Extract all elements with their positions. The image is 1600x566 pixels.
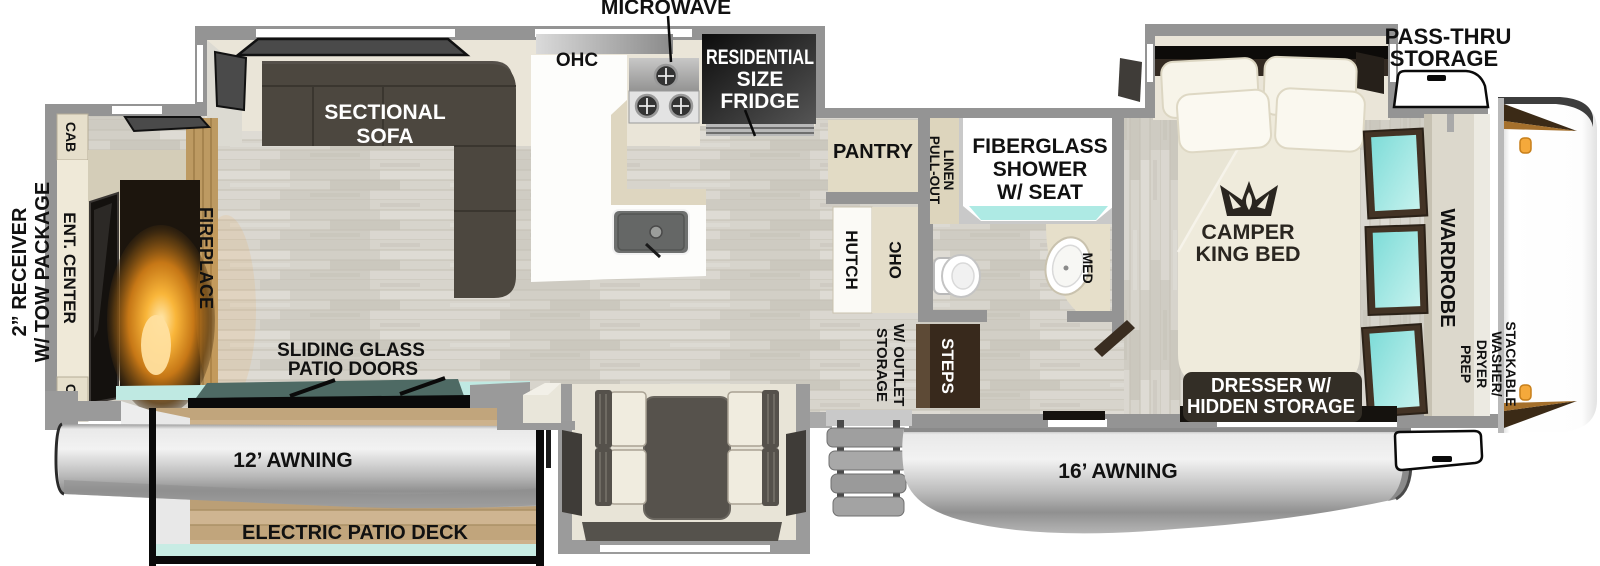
svg-text:2” RECEIVER: 2” RECEIVER xyxy=(9,207,31,336)
svg-text:FRIDGE: FRIDGE xyxy=(720,90,799,113)
svg-text:PREP: PREP xyxy=(1458,345,1474,383)
svg-text:WARDROBE: WARDROBE xyxy=(1436,209,1458,328)
svg-text:HIDDEN STORAGE: HIDDEN STORAGE xyxy=(1187,396,1355,418)
svg-text:HUTCH: HUTCH xyxy=(842,230,861,290)
svg-text:OHC: OHC xyxy=(886,241,905,279)
svg-text:STACKABLE: STACKABLE xyxy=(1503,321,1519,406)
svg-text:OHC: OHC xyxy=(556,50,599,71)
svg-text:DRESSER W/: DRESSER W/ xyxy=(1211,375,1331,397)
svg-text:12’ AWNING: 12’ AWNING xyxy=(233,449,352,472)
svg-text:FIREPLACE: FIREPLACE xyxy=(196,207,216,309)
svg-text:DRYER: DRYER xyxy=(1474,340,1490,389)
svg-text:16’ AWNING: 16’ AWNING xyxy=(1058,460,1177,483)
svg-text:MED: MED xyxy=(1080,252,1096,283)
svg-text:SLIDING GLASS: SLIDING GLASS xyxy=(277,340,425,361)
svg-text:SHOWER: SHOWER xyxy=(993,158,1088,181)
svg-text:KING BED: KING BED xyxy=(1195,242,1300,266)
svg-text:STORAGE: STORAGE xyxy=(1390,46,1498,71)
svg-text:LINEN: LINEN xyxy=(941,150,956,191)
svg-text:STEPS: STEPS xyxy=(938,338,957,394)
svg-text:FIBERGLASS: FIBERGLASS xyxy=(972,135,1107,158)
svg-text:CAMPER: CAMPER xyxy=(1201,220,1295,244)
svg-text:RESIDENTIAL: RESIDENTIAL xyxy=(706,46,814,69)
svg-text:SOFA: SOFA xyxy=(356,125,413,148)
svg-text:ELECTRIC PATIO DECK: ELECTRIC PATIO DECK xyxy=(242,522,468,544)
svg-text:CAB: CAB xyxy=(63,122,79,152)
svg-text:ENT. CENTER: ENT. CENTER xyxy=(60,212,79,323)
svg-text:PANTRY: PANTRY xyxy=(833,141,914,163)
svg-text:PATIO DOORS: PATIO DOORS xyxy=(288,359,418,380)
svg-text:W/ TOW PACKAGE: W/ TOW PACKAGE xyxy=(32,182,54,362)
svg-text:SECTIONAL: SECTIONAL xyxy=(324,101,446,124)
svg-text:STORAGE: STORAGE xyxy=(873,328,890,402)
svg-text:MICROWAVE: MICROWAVE xyxy=(601,0,731,19)
svg-text:W/ SEAT: W/ SEAT xyxy=(997,181,1083,204)
svg-text:SIZE: SIZE xyxy=(737,68,784,91)
svg-text:PULL-OUT: PULL-OUT xyxy=(927,136,942,205)
svg-text:WASHER/: WASHER/ xyxy=(1489,331,1505,396)
svg-text:W/ OUTLET: W/ OUTLET xyxy=(890,324,907,407)
